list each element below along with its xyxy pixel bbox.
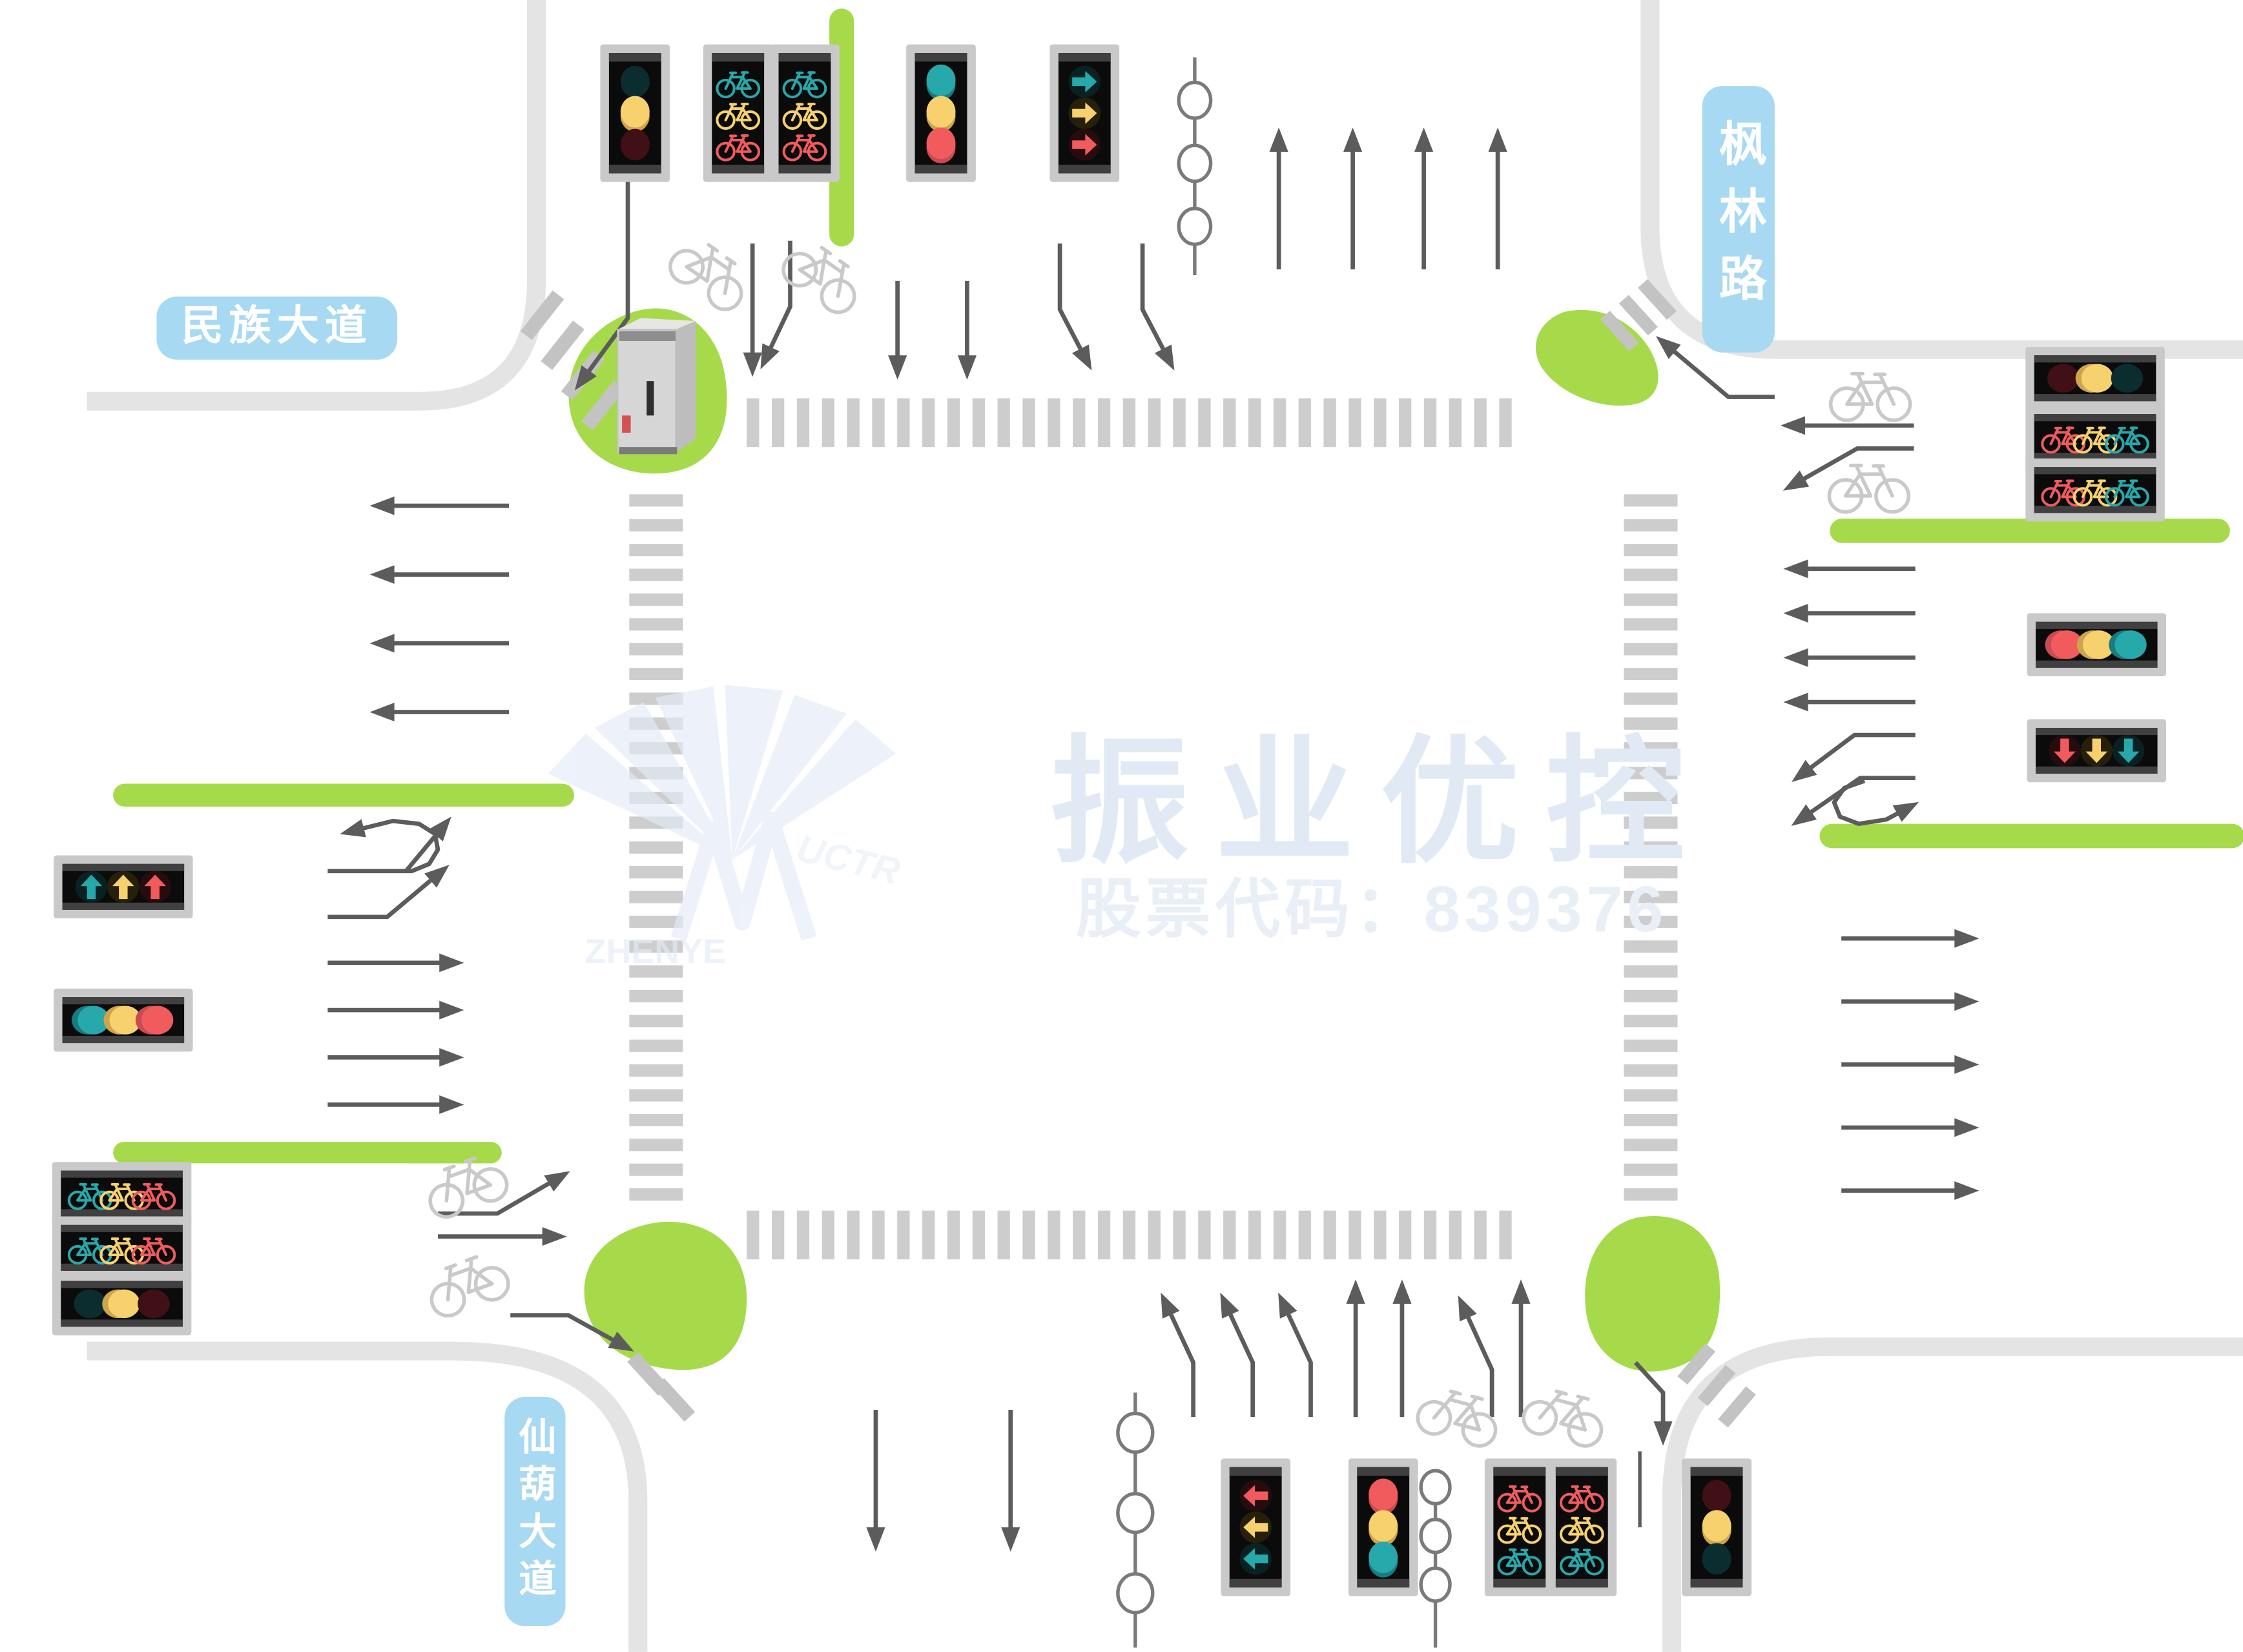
lane-arrow-s5	[1392, 1279, 1411, 1417]
road-label-xianhu-avenue: 仙葫大道	[504, 1397, 565, 1626]
watermark-logo: ZHENYE UCTR	[548, 685, 905, 970]
bicycle-icon	[1829, 466, 1908, 512]
bicycle-icon	[1831, 374, 1910, 420]
lane-arrow-n11	[1488, 127, 1507, 269]
lane-arrow-w11	[327, 1095, 464, 1114]
signal-south-disc-b	[1682, 1458, 1752, 1596]
signal-north-arrow-right	[1049, 45, 1119, 182]
lane-arrow-w3	[369, 634, 509, 653]
lane-arrow-e12	[1841, 1055, 1979, 1074]
lane-arrow-w5	[327, 819, 438, 871]
lane-arrow-n10	[1414, 127, 1433, 269]
north-dotline	[1179, 57, 1210, 275]
south-dotline-b	[1421, 1470, 1450, 1647]
bicycle-icon	[664, 232, 756, 316]
signal-north-bike-b	[770, 45, 840, 182]
bicycle-icon	[422, 1250, 513, 1320]
signal-north-disc-b	[906, 45, 976, 182]
signal-east-disc-b	[2027, 614, 2167, 677]
lane-arrow-w9	[327, 1001, 464, 1020]
signal-south-bike-a	[1485, 1458, 1555, 1596]
lane-arrow-e14	[1841, 1181, 1979, 1200]
signal-east-disc-a	[2025, 347, 2165, 410]
intersection-diagram: ZHENYE UCTR 民族大道 枫林路 仙葫大道 振业优控 股票代码：8393…	[0, 0, 2243, 1652]
lane-arrow-s3	[1270, 1288, 1311, 1417]
road-label-minzu-avenue: 民族大道	[156, 296, 397, 360]
lane-arrow-n6	[1060, 243, 1100, 375]
signal-south-arrow-left	[1221, 1458, 1290, 1596]
bicycle-icon	[1414, 1384, 1504, 1449]
median-strip-east-a	[1830, 519, 2230, 543]
lane-arrow-s6	[1449, 1292, 1492, 1417]
lane-arrow-n9	[1343, 127, 1362, 269]
signal-east-bike-b	[2025, 459, 2165, 522]
lane-arrow-e2	[1778, 448, 1914, 499]
lane-arrow-w2	[369, 565, 509, 584]
signal-west-arrow-up	[54, 855, 193, 918]
crosswalk	[629, 494, 683, 1201]
south-dotline-a	[1118, 1392, 1153, 1647]
lane-arrow-w7	[327, 858, 455, 917]
lane-arrow-e13	[1841, 1119, 1979, 1137]
bicycle-icon	[1520, 1384, 1609, 1449]
lane-arrow-w8	[327, 953, 464, 972]
signal-south-disc-a	[1349, 1458, 1418, 1596]
signal-north-bike-a	[703, 45, 773, 182]
lane-arrow-e8b	[1834, 781, 1923, 824]
lane-arrow-n4	[888, 281, 907, 380]
cabinet-base	[619, 447, 677, 454]
median-strip-west-b	[113, 1142, 502, 1163]
lane-arrow-e4	[1783, 604, 1915, 623]
signal-west-bike-a	[52, 1162, 192, 1225]
lane-arrow-e3	[1783, 559, 1915, 578]
lane-arrow-w1	[369, 497, 509, 515]
crosswalk	[747, 1211, 1511, 1259]
lane-arrow-w10	[327, 1048, 464, 1067]
lane-arrow-n7	[1142, 243, 1183, 375]
lane-arrow-s7	[1511, 1279, 1530, 1417]
logo-text-zhenye: ZHENYE	[584, 933, 725, 971]
lane-arrow-s1	[1152, 1288, 1194, 1417]
crosswalk	[1624, 494, 1677, 1201]
logo-text-uctr: UCTR	[792, 827, 904, 893]
median-strips	[113, 8, 2243, 1163]
signal-west-disc-b	[52, 1272, 192, 1336]
signal-west-bike-b	[52, 1217, 192, 1280]
lane-arrow-e6	[1783, 693, 1915, 712]
signal-cabinet	[617, 318, 696, 455]
lane-arrow-s2	[1212, 1288, 1253, 1417]
lane-arrow-n2	[743, 243, 762, 377]
lane-arrow-e5	[1783, 648, 1915, 667]
lane-arrow-n5	[958, 281, 977, 380]
cabinet-side	[676, 321, 696, 453]
cabinet-handle	[646, 381, 654, 415]
signal-west-disc-a	[54, 989, 193, 1052]
road-label-fenglin-road: 枫林路	[1702, 86, 1775, 353]
hatch-bar	[1718, 1387, 1756, 1428]
hatch-bar	[654, 1378, 696, 1422]
cabinet-sticker	[622, 415, 630, 433]
lane-arrow-w13	[438, 1227, 567, 1246]
lane-arrow-w4	[369, 703, 509, 721]
cabinet-top-strip	[619, 331, 676, 341]
signal-east-arrow-down	[2027, 719, 2167, 783]
island-southeast	[1585, 1216, 1720, 1372]
signal-north-disc-a	[600, 45, 670, 182]
lane-arrow-s4	[1346, 1279, 1365, 1417]
lane-arrow-s8	[866, 1410, 885, 1552]
crosswalk	[747, 398, 1511, 447]
lane-arrow-se1	[1635, 1363, 1672, 1446]
lane-arrow-e10	[1841, 929, 1979, 948]
signal-south-bike-b	[1547, 1458, 1617, 1596]
crosswalks	[629, 398, 1677, 1259]
median-strip-east-b	[1819, 824, 2243, 849]
lane-arrow-e11	[1841, 992, 1979, 1011]
lane-arrow-s9	[1001, 1410, 1020, 1552]
lane-arrow-n8	[1269, 127, 1288, 269]
lane-arrow-e7	[1786, 735, 1915, 789]
road-edge-southeast	[1671, 1347, 2243, 1652]
median-strip-west-a	[113, 784, 574, 807]
